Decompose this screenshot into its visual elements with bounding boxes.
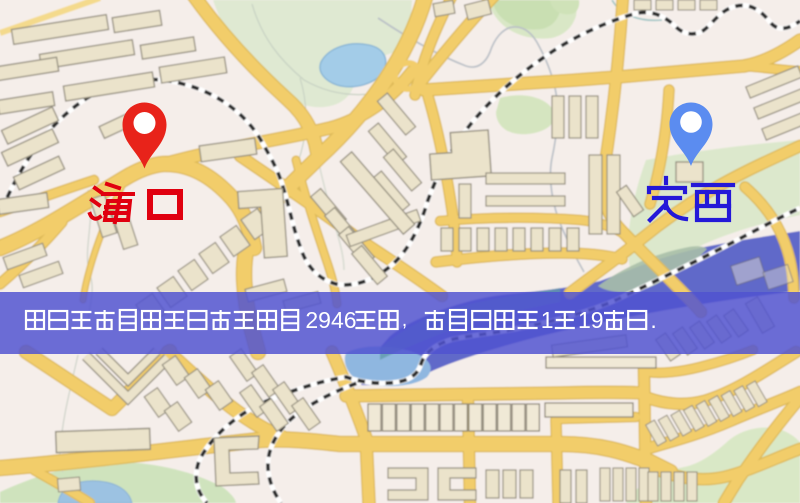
svg-text:1: 1 bbox=[541, 307, 554, 333]
svg-text:.: . bbox=[650, 307, 656, 333]
svg-text:2946: 2946 bbox=[305, 307, 356, 333]
svg-text:,: , bbox=[402, 309, 408, 331]
svg-text:19: 19 bbox=[578, 307, 604, 333]
